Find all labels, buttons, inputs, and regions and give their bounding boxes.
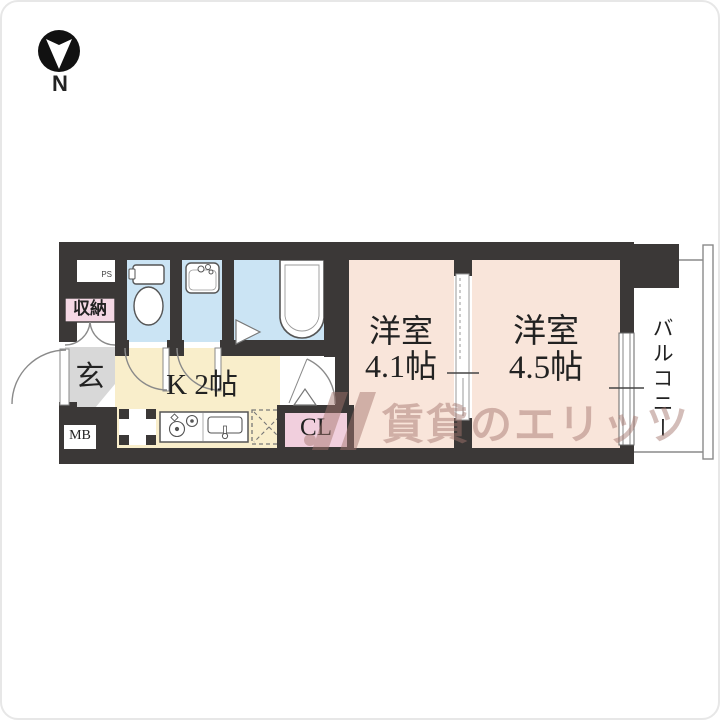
closet-label: CL: [285, 414, 347, 442]
bathtub-icon: [280, 250, 324, 338]
balcony-railing: [703, 245, 713, 459]
wall-toilet-left: [115, 260, 127, 348]
meter-box-label: MB: [60, 428, 100, 443]
kitchen-counter-icon: [160, 412, 248, 442]
entrance-door-arc: [12, 350, 66, 404]
washbasin-icon: [186, 263, 219, 293]
kitchen-label: K 2帖: [127, 370, 277, 402]
wall-divider-top: [454, 242, 472, 276]
wall-under-ps: [59, 282, 115, 299]
wall-toilet-wash: [170, 260, 182, 348]
pipe-space-label: PS: [86, 271, 112, 280]
balcony-label: バルコニー: [650, 294, 673, 464]
wall-room2-right-lower: [620, 445, 634, 464]
western-room-1-name: 洋室: [369, 313, 433, 349]
wall-divider-bottom: [454, 418, 472, 464]
wall-room2-right-upper: [620, 242, 634, 334]
wall-wet-bottom-b: [167, 340, 184, 356]
entrance-label: 玄: [65, 362, 115, 394]
north-label: N: [45, 72, 75, 96]
western-room-1-label: 洋室 4.1帖: [342, 314, 460, 384]
western-room-2-size: 4.5帖: [470, 350, 622, 386]
western-room-1-size: 4.1帖: [342, 349, 460, 384]
north-compass-icon: [38, 30, 80, 72]
wall-wash-bath: [222, 260, 234, 348]
wall-wet-bottom-a: [115, 340, 129, 356]
storage-label: 収納: [64, 300, 116, 319]
western-room-2-name: 洋室: [513, 314, 579, 350]
kitchen-table-icon: [119, 409, 156, 445]
floorplan-page: PS 収納 玄 MB K 2帖 CL 洋室 4.1帖 洋室 4.5帖 バルコニー…: [0, 0, 720, 720]
western-room-2-label: 洋室 4.5帖: [470, 314, 622, 387]
